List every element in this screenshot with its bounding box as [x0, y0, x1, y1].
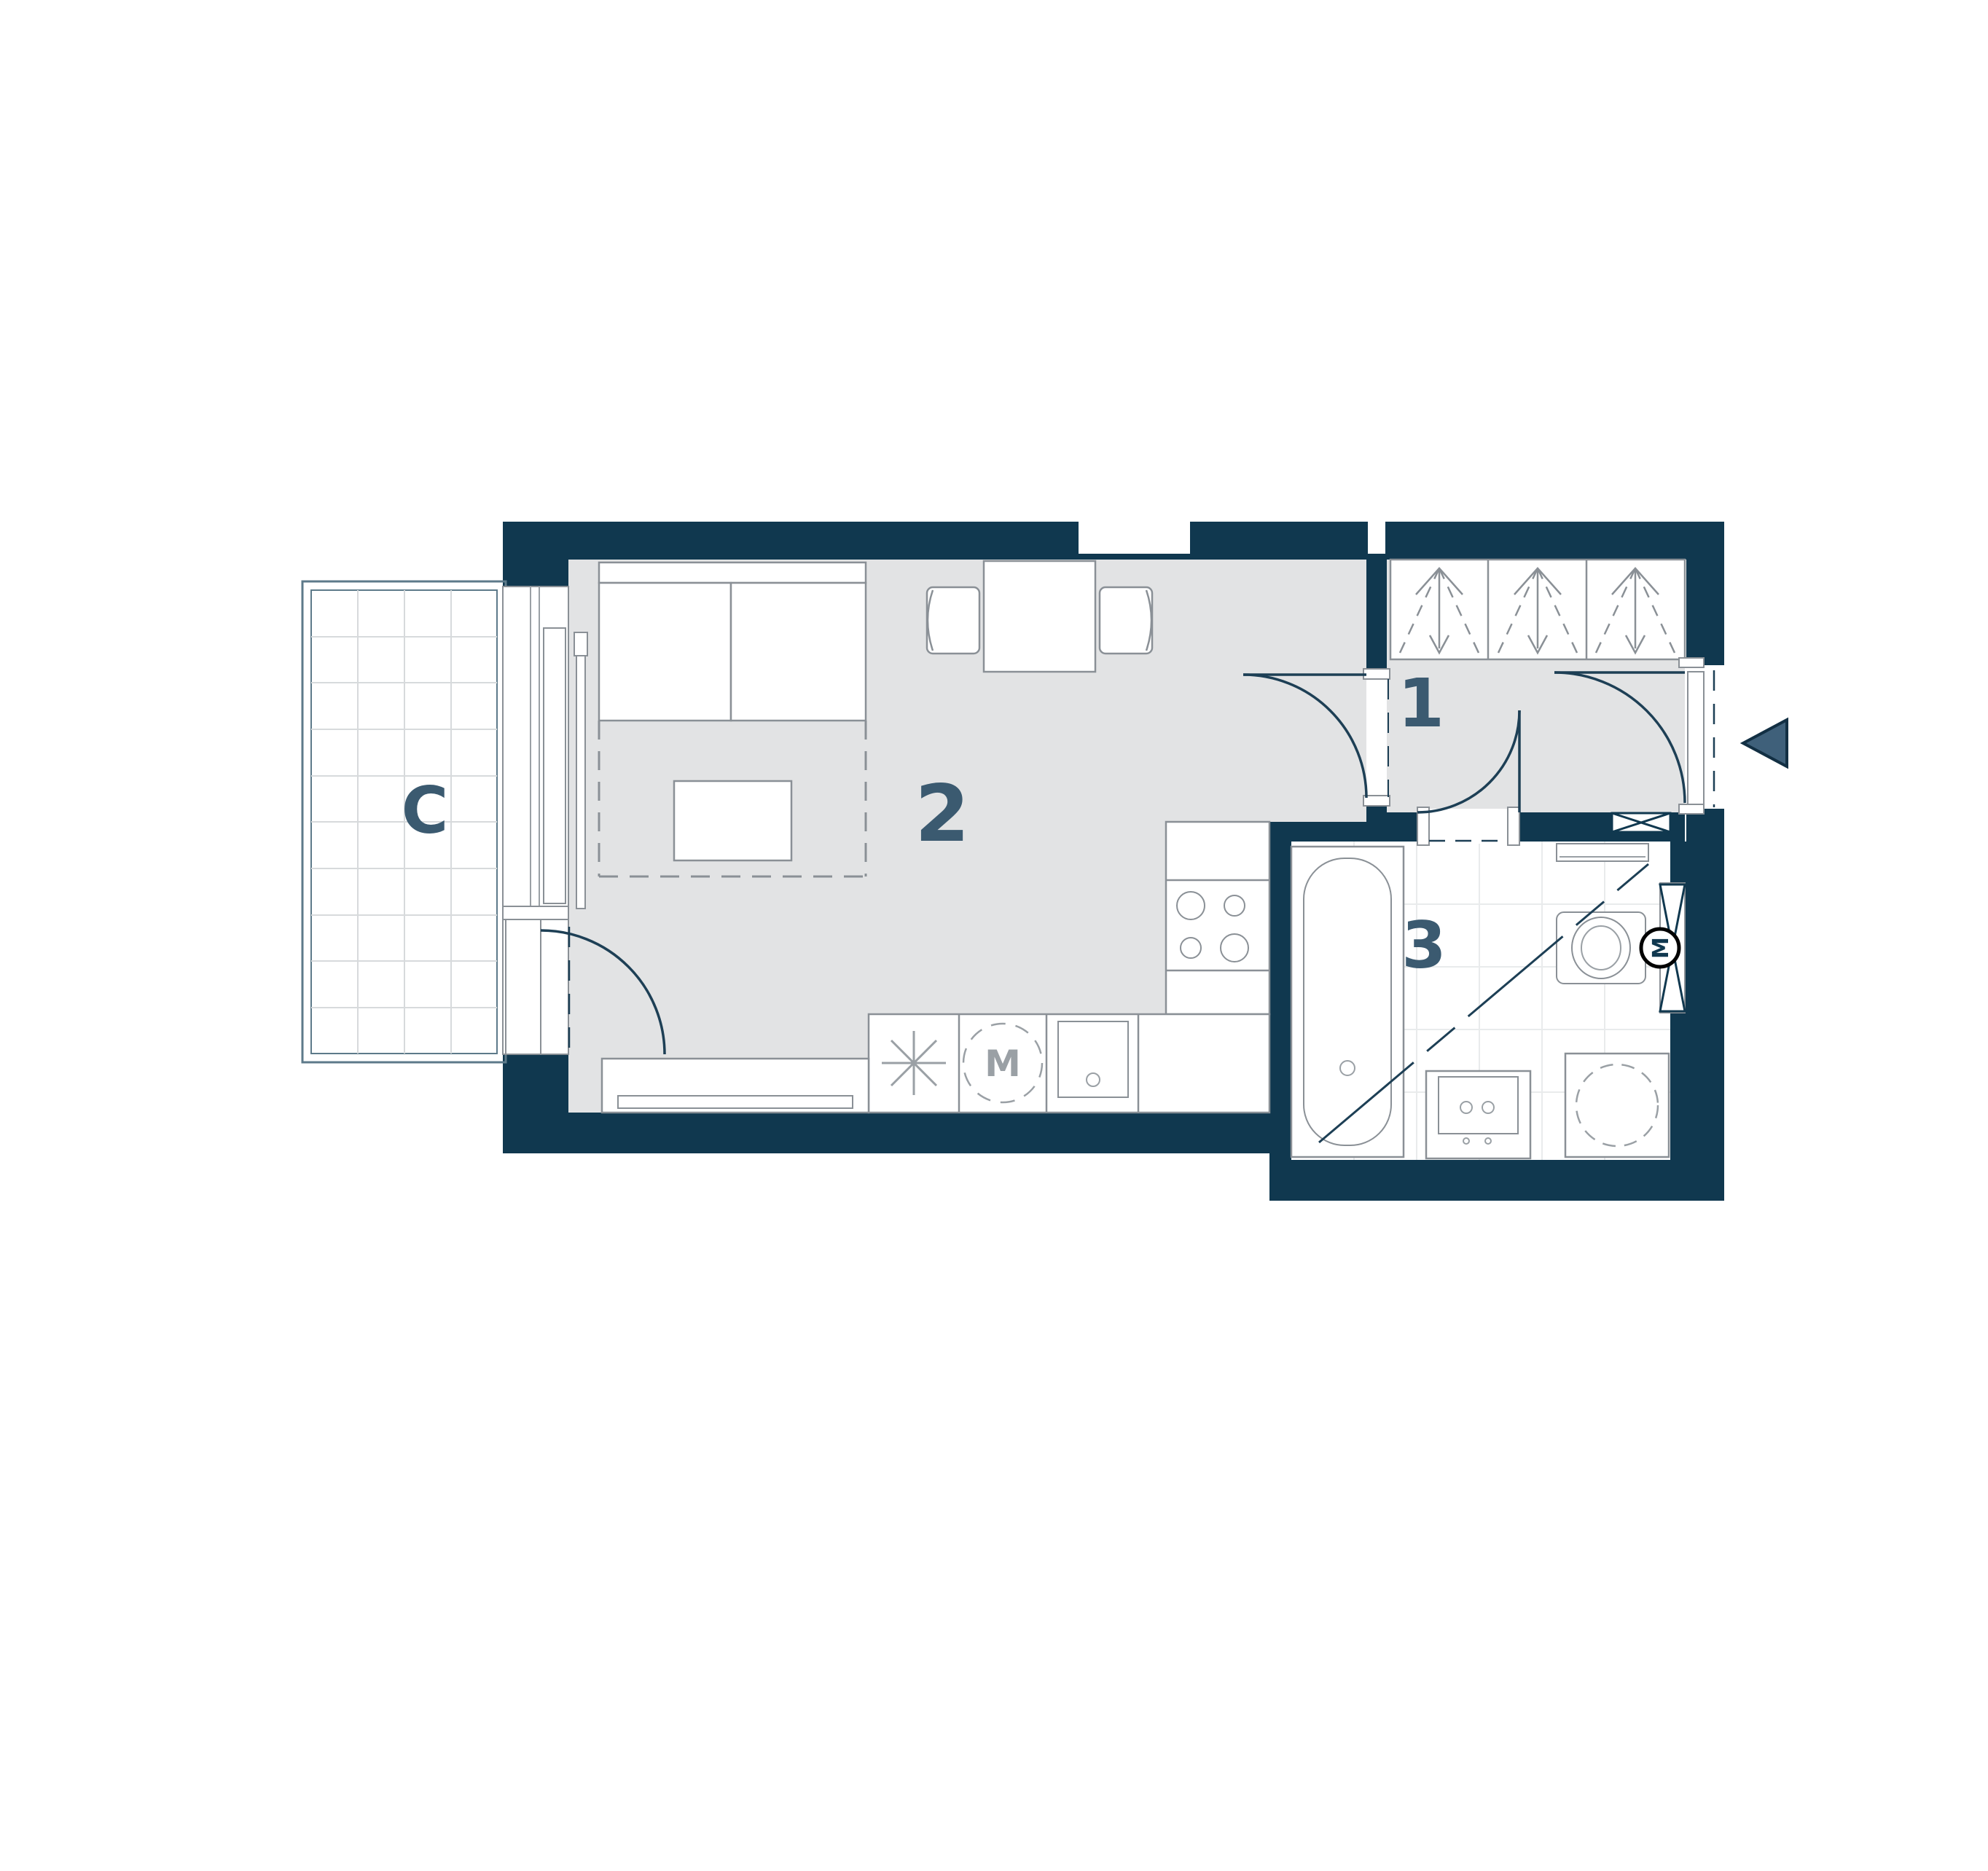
wall-bathroom-bottom	[1269, 1160, 1724, 1201]
radiator	[574, 632, 587, 909]
floor-plan-page: C	[0, 0, 1988, 1871]
dining-chair-left	[927, 587, 979, 654]
balcony: C	[302, 581, 506, 1062]
kitchen-counter-column	[1166, 822, 1269, 1014]
burner-4	[1221, 934, 1248, 962]
washing-machine-symbol: M	[985, 1043, 1021, 1085]
fridge	[882, 1031, 946, 1095]
sofa-backrest	[599, 562, 866, 583]
entrance-door-jamb	[1688, 672, 1704, 806]
kitchen-sink	[1058, 1021, 1128, 1097]
floor-plan-drawing: C	[0, 0, 1988, 1871]
hall-label: 1	[1398, 664, 1444, 742]
fan-motor-symbol: M	[1648, 937, 1674, 959]
fridge-snowflake-icon	[882, 1031, 946, 1095]
wall-left-upper	[503, 522, 568, 587]
entrance-threshold-top	[1679, 658, 1704, 667]
bathtub	[1291, 847, 1404, 1157]
door-threshold-top	[1363, 669, 1390, 679]
wall-top-joint-notch	[1079, 522, 1190, 554]
window-sash	[544, 628, 566, 903]
balcony-label: C	[402, 773, 449, 848]
burner-2	[1224, 895, 1245, 916]
living-room-label: 2	[915, 769, 969, 860]
coffee-table	[674, 781, 791, 860]
entrance-arrow-icon	[1743, 720, 1787, 766]
sofa-seat-right	[731, 583, 866, 721]
bath-door-threshold-right	[1508, 807, 1519, 845]
washing-machine-bathroom	[1565, 1054, 1669, 1157]
burner-3	[1181, 938, 1201, 958]
sofa	[599, 562, 866, 721]
wardrobe	[1390, 560, 1685, 659]
burner-1	[1177, 892, 1205, 919]
toilet-cistern-shelf	[1557, 844, 1648, 861]
washbasin	[1426, 1071, 1530, 1158]
bathroom-label: 3	[1401, 908, 1446, 983]
dining-table	[984, 561, 1095, 672]
kitchen-low-cabinet	[602, 1059, 869, 1113]
balcony-door-leaf	[506, 919, 541, 1054]
wall-top-partition-joint	[1368, 522, 1385, 554]
sofa-seat-left	[599, 583, 731, 721]
dining-chair-right	[1100, 587, 1152, 654]
wall-bottom-living	[503, 1113, 1291, 1153]
ventilation-shaft	[1612, 813, 1670, 832]
entrance-threshold-bottom	[1679, 804, 1704, 814]
window-transom	[503, 906, 568, 919]
wall-bathroom-left	[1269, 822, 1291, 1201]
